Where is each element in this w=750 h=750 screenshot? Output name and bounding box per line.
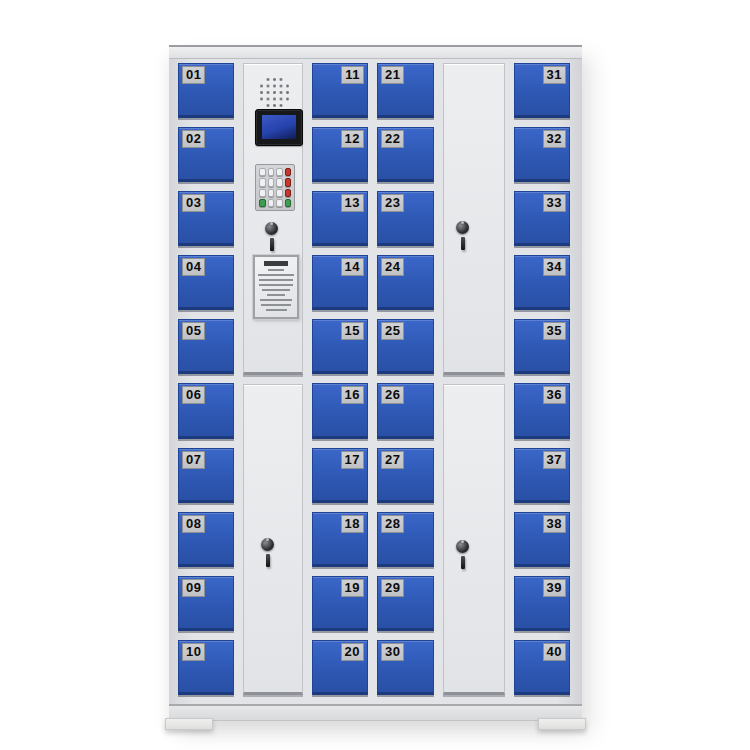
instruction-card-text-line [261,304,290,306]
lock-cylinder-icon [456,540,469,553]
locker-door[interactable]: 24 [377,255,434,310]
locker-door[interactable]: 29 [377,576,434,631]
locker-door[interactable]: 23 [377,191,434,246]
keypad-key[interactable] [285,178,292,186]
locker-door[interactable]: 38 [514,512,570,567]
instruction-card-lines [255,261,297,311]
instruction-card-title-bar [264,261,288,266]
locker-door[interactable]: 25 [377,319,434,374]
locker-door[interactable]: 05 [178,319,234,374]
locker-door[interactable]: 04 [178,255,234,310]
key-icon [461,556,465,569]
locker-door[interactable]: 36 [514,383,570,438]
locker-door[interactable]: 32 [514,127,570,182]
locker-number-plate: 30 [381,643,404,661]
locker-number-plate: 10 [182,643,205,661]
locker-door[interactable]: 27 [377,448,434,503]
locker-door[interactable]: 06 [178,383,234,438]
locker-column-6: 31323334353637383940 [514,63,570,695]
locker-door[interactable]: 39 [514,576,570,631]
instruction-card-text-line [258,274,293,276]
locker-door[interactable]: 19 [312,576,368,631]
locker-number-plate: 13 [341,194,364,212]
locker-number-plate: 36 [543,386,566,404]
locker-number-plate: 28 [381,515,404,533]
locker-number-plate: 03 [182,194,205,212]
locker-door[interactable]: 26 [377,383,434,438]
locker-number-plate: 25 [381,322,404,340]
locker-number-plate: 38 [543,515,566,533]
locker-door[interactable]: 10 [178,640,234,695]
locker-door[interactable]: 40 [514,640,570,695]
service-door-key-lock[interactable] [456,535,470,569]
locker-number-plate: 06 [182,386,205,404]
locker-number-plate: 12 [341,130,364,148]
cabinet-base [169,704,582,721]
locker-column-1: 01020304050607080910 [178,63,234,695]
locker-number-plate: 01 [182,66,205,84]
keypad-key[interactable] [285,189,292,197]
locker-number-plate: 24 [381,258,404,276]
locker-door[interactable]: 07 [178,448,234,503]
locker-door[interactable]: 30 [377,640,434,695]
locker-door[interactable]: 16 [312,383,368,438]
locker-door[interactable]: 01 [178,63,234,118]
locker-column-3: 11121314151617181920 [312,63,368,695]
keypad-key[interactable] [276,168,283,176]
instruction-card-text-line [260,299,293,301]
keypad-key[interactable] [268,168,275,176]
locker-door[interactable]: 22 [377,127,434,182]
keypad-key[interactable] [259,189,266,197]
keypad-key[interactable] [285,168,292,176]
locker-door[interactable]: 37 [514,448,570,503]
lock-cylinder-icon [456,221,469,234]
locker-number-plate: 33 [543,194,566,212]
locker-number-plate: 11 [341,66,364,84]
keypad-key[interactable] [259,199,266,207]
instruction-card-text-line [266,309,287,311]
keypad-key[interactable] [268,189,275,197]
locker-number-plate: 27 [381,451,404,469]
locker-number-plate: 40 [543,643,566,661]
instruction-card-text-line [259,279,293,281]
locker-column-4: 21222324252627282930 [377,63,434,695]
locker-number-plate: 02 [182,130,205,148]
key-icon [461,237,465,250]
locker-door[interactable]: 28 [377,512,434,567]
instruction-card-text-line [267,294,285,296]
cabinet-top-cap [169,45,582,59]
locker-door[interactable]: 12 [312,127,368,182]
keypad-key[interactable] [268,199,275,207]
keypad-key[interactable] [276,199,283,207]
locker-number-plate: 05 [182,322,205,340]
locker-number-plate: 07 [182,451,205,469]
locker-door[interactable]: 14 [312,255,368,310]
locker-door[interactable]: 03 [178,191,234,246]
locker-number-plate: 18 [341,515,364,533]
service-door-upper-right[interactable] [443,63,505,375]
instruction-card [253,255,299,319]
locker-number-plate: 26 [381,386,404,404]
locker-number-plate: 08 [182,515,205,533]
control-column [243,63,303,695]
speaker-grille-icon [258,76,291,109]
key-icon [266,554,270,567]
locker-number-plate: 19 [341,579,364,597]
locker-door[interactable]: 08 [178,512,234,567]
instruction-card-text-line [268,269,283,271]
locker-number-plate: 17 [341,451,364,469]
keypad-key[interactable] [276,189,283,197]
locker-number-plate: 09 [182,579,205,597]
locker-door[interactable]: 35 [514,319,570,374]
keypad-key[interactable] [268,178,275,186]
service-door-lower-right[interactable] [443,384,505,696]
instruction-card-text-line [262,289,290,291]
lcd-screen [255,109,303,146]
locker-door[interactable]: 13 [312,191,368,246]
locker-door[interactable]: 02 [178,127,234,182]
locker-number-plate: 14 [341,258,364,276]
locker-door[interactable]: 33 [514,191,570,246]
locker-number-plate: 04 [182,258,205,276]
locker-door[interactable]: 31 [514,63,570,118]
locker-door[interactable]: 15 [312,319,368,374]
locker-door[interactable]: 11 [312,63,368,118]
locker-number-plate: 35 [543,322,566,340]
locker-number-plate: 23 [381,194,404,212]
service-door-key-lock[interactable] [261,533,275,567]
locker-number-plate: 16 [341,386,364,404]
locker-door[interactable]: 09 [178,576,234,631]
locker-door[interactable]: 21 [377,63,434,118]
service-column [443,63,505,695]
lock-cylinder-icon [265,222,278,235]
control-panel [243,63,303,375]
keypad-key[interactable] [276,178,283,186]
cabinet-foot-right [538,718,586,730]
locker-number-plate: 15 [341,322,364,340]
locker-door[interactable]: 18 [312,512,368,567]
cabinet-foot-left [165,718,213,730]
locker-door[interactable]: 34 [514,255,570,310]
keypad-key[interactable] [259,178,266,186]
keypad-key[interactable] [259,168,266,176]
locker-number-plate: 29 [381,579,404,597]
locker-cabinet: 01020304050607080910 [169,45,582,721]
lcd-glass [262,115,296,139]
locker-number-plate: 21 [381,66,404,84]
locker-number-plate: 39 [543,579,566,597]
keypad [255,164,295,211]
locker-number-plate: 37 [543,451,566,469]
locker-door[interactable]: 20 [312,640,368,695]
service-door-key-lock[interactable] [456,216,470,250]
locker-number-plate: 32 [543,130,566,148]
control-door-key-lock[interactable] [265,217,279,251]
service-door-lower-left[interactable] [243,384,303,696]
locker-number-plate: 20 [341,643,364,661]
key-icon [270,238,274,251]
instruction-card-text-line [259,284,293,286]
keypad-key[interactable] [285,199,292,207]
cabinet-body: 01020304050607080910 [169,59,582,704]
lock-cylinder-icon [261,538,274,551]
locker-number-plate: 22 [381,130,404,148]
locker-door[interactable]: 17 [312,448,368,503]
locker-number-plate: 31 [543,66,566,84]
locker-number-plate: 34 [543,258,566,276]
